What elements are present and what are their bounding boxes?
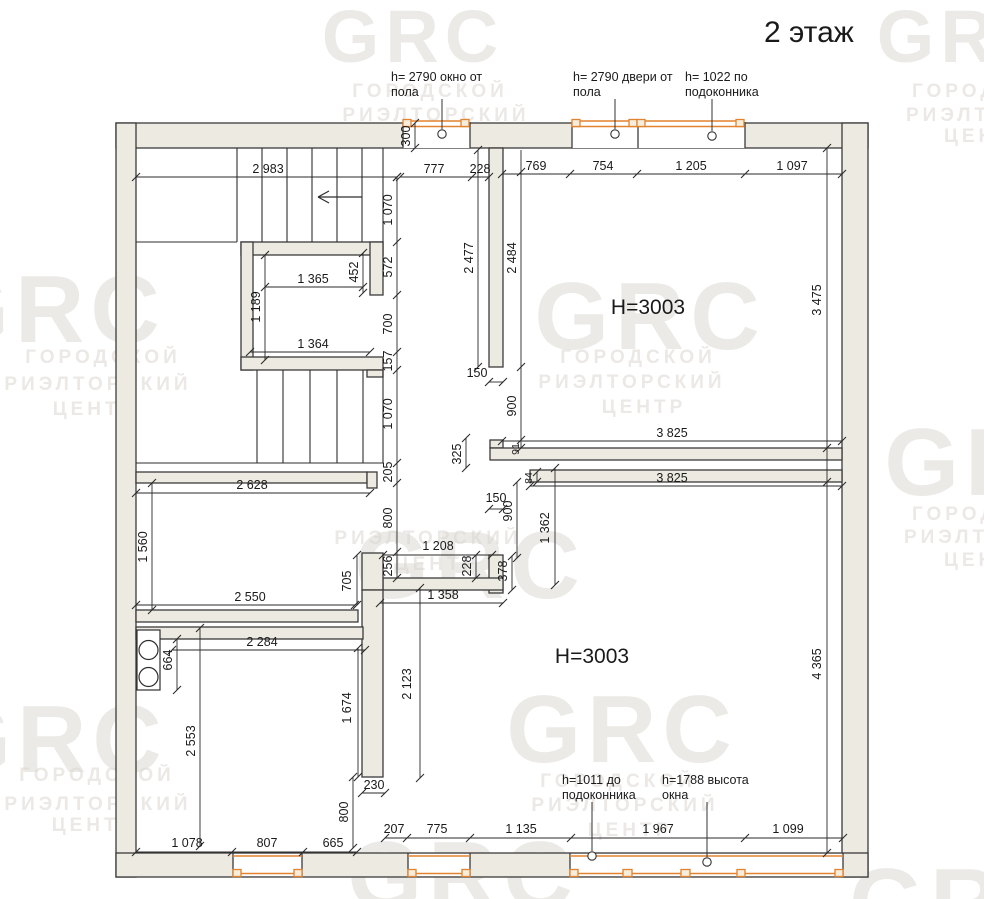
annotation-text: h=1011 до bbox=[562, 773, 621, 787]
watermark-text: ЦЕНТР bbox=[602, 397, 687, 418]
annotation-text: пола bbox=[391, 85, 419, 99]
watermark-logo: GRC bbox=[877, 0, 984, 78]
dimension-label: 207 bbox=[384, 822, 405, 836]
watermark-text: ГОРОДСКОЙ bbox=[912, 503, 984, 525]
dimension-label: 228 bbox=[460, 556, 474, 577]
wall bbox=[116, 123, 136, 877]
annotation-text: h= 1022 по bbox=[685, 70, 748, 84]
watermark-logo: GRC bbox=[506, 676, 737, 783]
annotation-text: h=1788 высота bbox=[662, 773, 749, 787]
dimension-label: 325 bbox=[450, 444, 464, 465]
leader-marker-icon bbox=[611, 130, 619, 138]
wall bbox=[116, 123, 868, 148]
dimension-label: 91 bbox=[510, 443, 522, 455]
dimension-label: 2 628 bbox=[236, 478, 267, 492]
window-mullion-icon bbox=[403, 120, 411, 127]
dimension-label: 1 208 bbox=[422, 539, 453, 553]
watermark-text: РИЭЛТОРСКИЙ bbox=[538, 371, 725, 393]
watermark-logo: GRC bbox=[322, 0, 504, 78]
dimension-label: 807 bbox=[257, 836, 278, 850]
dimension-label: 1 070 bbox=[381, 194, 395, 225]
window-mullion-icon bbox=[462, 870, 470, 877]
leader-marker-icon bbox=[588, 852, 596, 860]
window-mullion-icon bbox=[623, 870, 632, 877]
watermark-text: ГОРОДСКОЙ bbox=[912, 80, 984, 102]
dimension-label: 777 bbox=[424, 162, 445, 176]
window-mullion-icon bbox=[835, 870, 843, 877]
dimension-label: 1 365 bbox=[297, 272, 328, 286]
dimension-label: 1 362 bbox=[538, 512, 552, 543]
leader-marker-icon bbox=[708, 132, 716, 140]
annotation-bottom-window: h=1788 высота окна bbox=[662, 773, 749, 866]
wall bbox=[489, 148, 503, 367]
wall bbox=[362, 590, 383, 777]
dimension-label: 1 189 bbox=[249, 291, 263, 322]
annotation-text: h= 2790 двери от bbox=[573, 70, 673, 84]
dimension-label: 378 bbox=[496, 561, 510, 582]
dimension-label: 1 099 bbox=[772, 822, 803, 836]
dimension-label: 230 bbox=[364, 778, 385, 792]
floor-plan-page: GRC ГОРОДСКОЙ РИЭЛТОРСКИЙ ЦЕНТР GRC ГОРО… bbox=[0, 0, 984, 899]
dimension-label: 3 475 bbox=[810, 284, 824, 315]
dimension-label: 1 364 bbox=[297, 337, 328, 351]
dimension-label: 2 484 bbox=[505, 242, 519, 273]
dimension-label: 2 550 bbox=[234, 590, 265, 604]
dimension-label: 1 135 bbox=[505, 822, 536, 836]
dimension-label: 900 bbox=[501, 501, 515, 522]
window-mullion-icon bbox=[461, 120, 469, 127]
window-mullion-icon bbox=[681, 870, 690, 877]
annotation-text: подоконника bbox=[685, 85, 759, 99]
dimension-label: 1 674 bbox=[340, 692, 354, 723]
dimension-label: 1 967 bbox=[642, 822, 673, 836]
window-mullion-icon bbox=[570, 870, 578, 877]
dimension-label: 2 553 bbox=[184, 725, 198, 756]
dimension-label: 2 284 bbox=[246, 635, 277, 649]
watermark-text: РИЭЛТОРСКИЙ bbox=[904, 526, 984, 548]
leader-marker-icon bbox=[438, 130, 446, 138]
dimension-label: 300 bbox=[399, 126, 413, 147]
leader-marker-icon bbox=[703, 858, 711, 866]
dimension-label: 2 123 bbox=[400, 668, 414, 699]
page-title: 2 этаж bbox=[764, 16, 854, 49]
room-height-label: H=3003 bbox=[555, 645, 629, 668]
window-mullion-icon bbox=[572, 120, 580, 127]
window-mullion-icon bbox=[408, 870, 416, 877]
dimension-label: 452 bbox=[347, 262, 361, 283]
wall bbox=[367, 472, 377, 488]
dimension-label: 205 bbox=[381, 462, 395, 483]
wall bbox=[136, 610, 358, 622]
dimension-label: 2 983 bbox=[252, 162, 283, 176]
dimension-label: 150 bbox=[467, 366, 488, 380]
floor-plan-drawing: GRC ГОРОДСКОЙ РИЭЛТОРСКИЙ ЦЕНТР GRC ГОРО… bbox=[0, 0, 984, 899]
watermark-text: РИЭЛТОРСКИЙ bbox=[4, 793, 191, 815]
annotation-text: окна bbox=[662, 788, 688, 802]
dimension-label: 84 bbox=[523, 472, 535, 484]
dimension-label: 1 078 bbox=[171, 836, 202, 850]
wall bbox=[842, 123, 868, 877]
dimension-label: 700 bbox=[381, 314, 395, 335]
stair-direction-arrow-icon bbox=[318, 191, 362, 203]
dimension-label: 775 bbox=[427, 822, 448, 836]
dimension-label: 665 bbox=[323, 836, 344, 850]
watermark-text: ЦЕНТР bbox=[944, 126, 984, 147]
stove-fixture-icon bbox=[137, 630, 160, 690]
watermark-text: РИЭЛТОРСКИЙ bbox=[4, 373, 191, 395]
window-mullion-icon bbox=[637, 120, 645, 127]
dimension-label: 900 bbox=[505, 396, 519, 417]
wall bbox=[241, 242, 383, 255]
watermark-text: ГОРОДСКОЙ bbox=[19, 764, 175, 786]
dimension-label: 4 365 bbox=[810, 648, 824, 679]
dimension-label: 228 bbox=[470, 162, 491, 176]
room-height-label: H=3003 bbox=[611, 296, 685, 319]
watermark-logo: GRC bbox=[884, 409, 984, 516]
watermark-logo: GRC bbox=[849, 849, 984, 899]
dimension-label: 664 bbox=[161, 650, 175, 671]
dimension-label: 3 825 bbox=[656, 426, 687, 440]
wall bbox=[241, 357, 383, 370]
dimension-label: 1 560 bbox=[136, 531, 150, 562]
dimension-label: 705 bbox=[340, 571, 354, 592]
window-mullion-icon bbox=[233, 870, 241, 877]
dimension-label: 256 bbox=[381, 556, 395, 577]
dimension-label: 2 477 bbox=[462, 242, 476, 273]
window-mullion-icon bbox=[737, 870, 745, 877]
dimension-label: 769 bbox=[526, 159, 547, 173]
annotation-text: h= 2790 окно от bbox=[391, 70, 482, 84]
wall bbox=[490, 448, 842, 460]
dimension-label: 3 825 bbox=[656, 471, 687, 485]
watermark-text: ЦЕНТР bbox=[944, 550, 984, 571]
dimension-label: 1 358 bbox=[427, 588, 458, 602]
window-mullion-icon bbox=[736, 120, 744, 127]
window-mullion-icon bbox=[294, 870, 302, 877]
watermark-text: ГОРОДСКОЙ bbox=[560, 346, 716, 368]
annotation-text: пола bbox=[573, 85, 601, 99]
window-mullion-icon bbox=[629, 120, 637, 127]
dimension-label: 754 bbox=[593, 159, 614, 173]
annotation-text: подоконника bbox=[562, 788, 636, 802]
dimension-label: 157 bbox=[381, 351, 395, 372]
watermark-text: ГОРОДСКОЙ bbox=[25, 346, 181, 368]
dimension-label: 800 bbox=[337, 802, 351, 823]
dimension-label: 1 097 bbox=[776, 159, 807, 173]
dimension-label: 800 bbox=[381, 508, 395, 529]
dimension-label: 1 205 bbox=[675, 159, 706, 173]
dimension-label: 572 bbox=[381, 257, 395, 278]
dimension-label: 1 070 bbox=[381, 398, 395, 429]
watermark-text: РИЭЛТОРСКИЙ bbox=[906, 104, 984, 126]
